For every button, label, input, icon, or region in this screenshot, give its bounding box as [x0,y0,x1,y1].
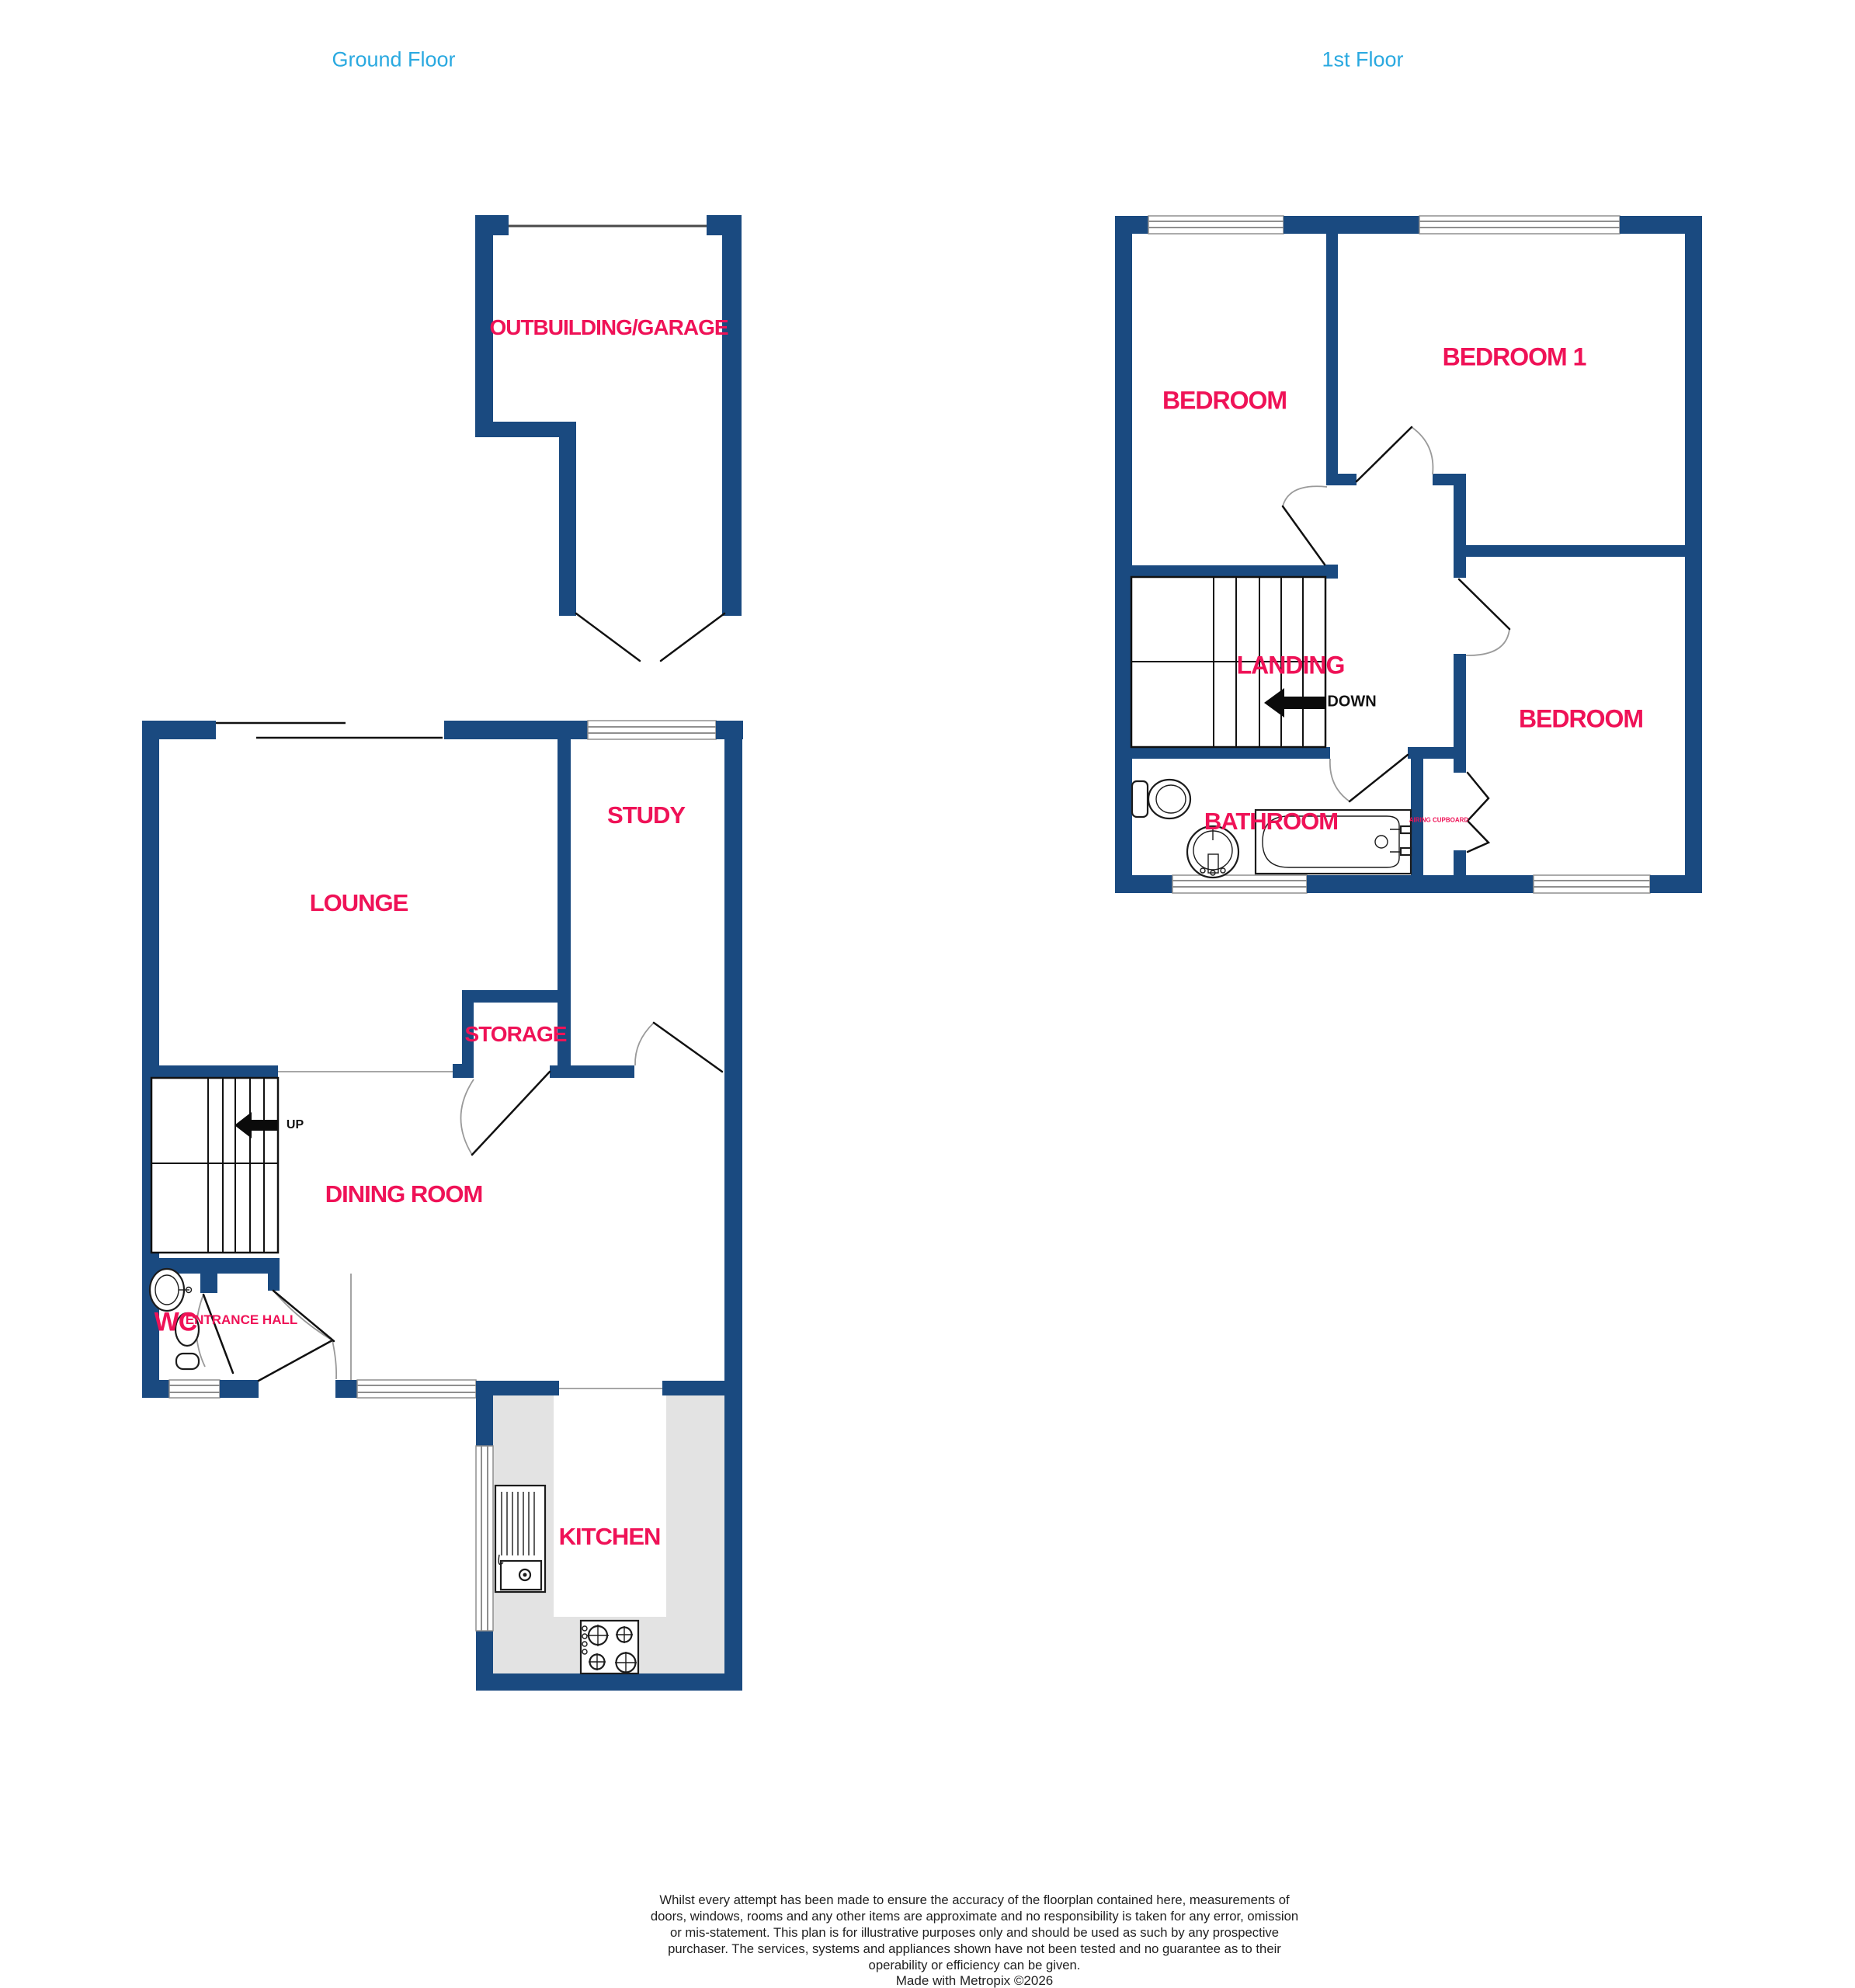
bathroom-window [1172,875,1307,893]
study-window [588,721,716,739]
room-label-landing: LANDING [1237,652,1345,680]
disclaimer-text: Whilst every attempt has been made to en… [648,1892,1302,1973]
bedroom1-window [1419,216,1620,234]
floor-plan-drawing [0,0,1855,1988]
wc-door [203,1295,233,1373]
front-door [259,1340,332,1381]
airing-cupboard-bifold-door [1468,773,1489,852]
room-label-kitchen: KITCHEN [559,1523,661,1551]
bathroom-toilet [1132,780,1190,818]
storage-door [472,1072,550,1155]
room-boundary-lines [278,1072,662,1388]
room-label-lounge: LOUNGE [310,889,408,917]
bedroom-door [1459,579,1509,629]
first-floor-walls [1115,216,1702,893]
bedroom-window [1148,216,1284,234]
room-label-outbuilding: OUTBUILDING/GARAGE [489,315,728,340]
room-label-bedroom-one: BEDROOM 1 [1443,343,1586,372]
first-floor-title: 1st Floor [1322,48,1403,72]
bedroom-window [1534,875,1650,893]
garage-door-leaf [661,613,724,661]
study-door [654,1023,722,1072]
credit-text: Made with Metropix ©2026 [641,1973,1308,1988]
floorplan-page: Ground Floor 1st Floor OUTBUILDING/GARAG… [0,0,1855,1988]
room-label-entrance-hall: ENTRANCE HALL [186,1312,298,1328]
bedroom1-door [1357,427,1412,481]
stairs-down-label: DOWN [1327,693,1376,711]
kitchen-sink-unit [495,1486,545,1592]
bedroom-door [1283,506,1325,565]
hall-window [357,1380,476,1398]
outbuilding-walls [475,215,742,661]
room-label-storage: STORAGE [465,1022,567,1047]
bathroom-door [1350,755,1408,801]
room-label-study: STUDY [607,801,685,829]
ground-floor-title: Ground Floor [332,48,455,72]
wc-window [169,1380,220,1398]
kitchen-window [476,1446,493,1631]
room-label-dining-room: DINING ROOM [325,1180,483,1208]
room-label-airing-cupboard: AIRING CUPBOARD [1409,817,1468,824]
stairs-up-label: UP [287,1118,304,1132]
room-label-bathroom: BATHROOM [1204,808,1338,836]
kitchen-hob [581,1621,638,1673]
room-label-bedroom-left: BEDROOM [1162,387,1287,415]
ground-floor-stairs [151,1078,278,1253]
room-label-bedroom-right: BEDROOM [1519,705,1643,734]
wc-sink [150,1269,192,1311]
garage-door-leaf [576,613,640,661]
kitchen-counter [666,1395,724,1673]
